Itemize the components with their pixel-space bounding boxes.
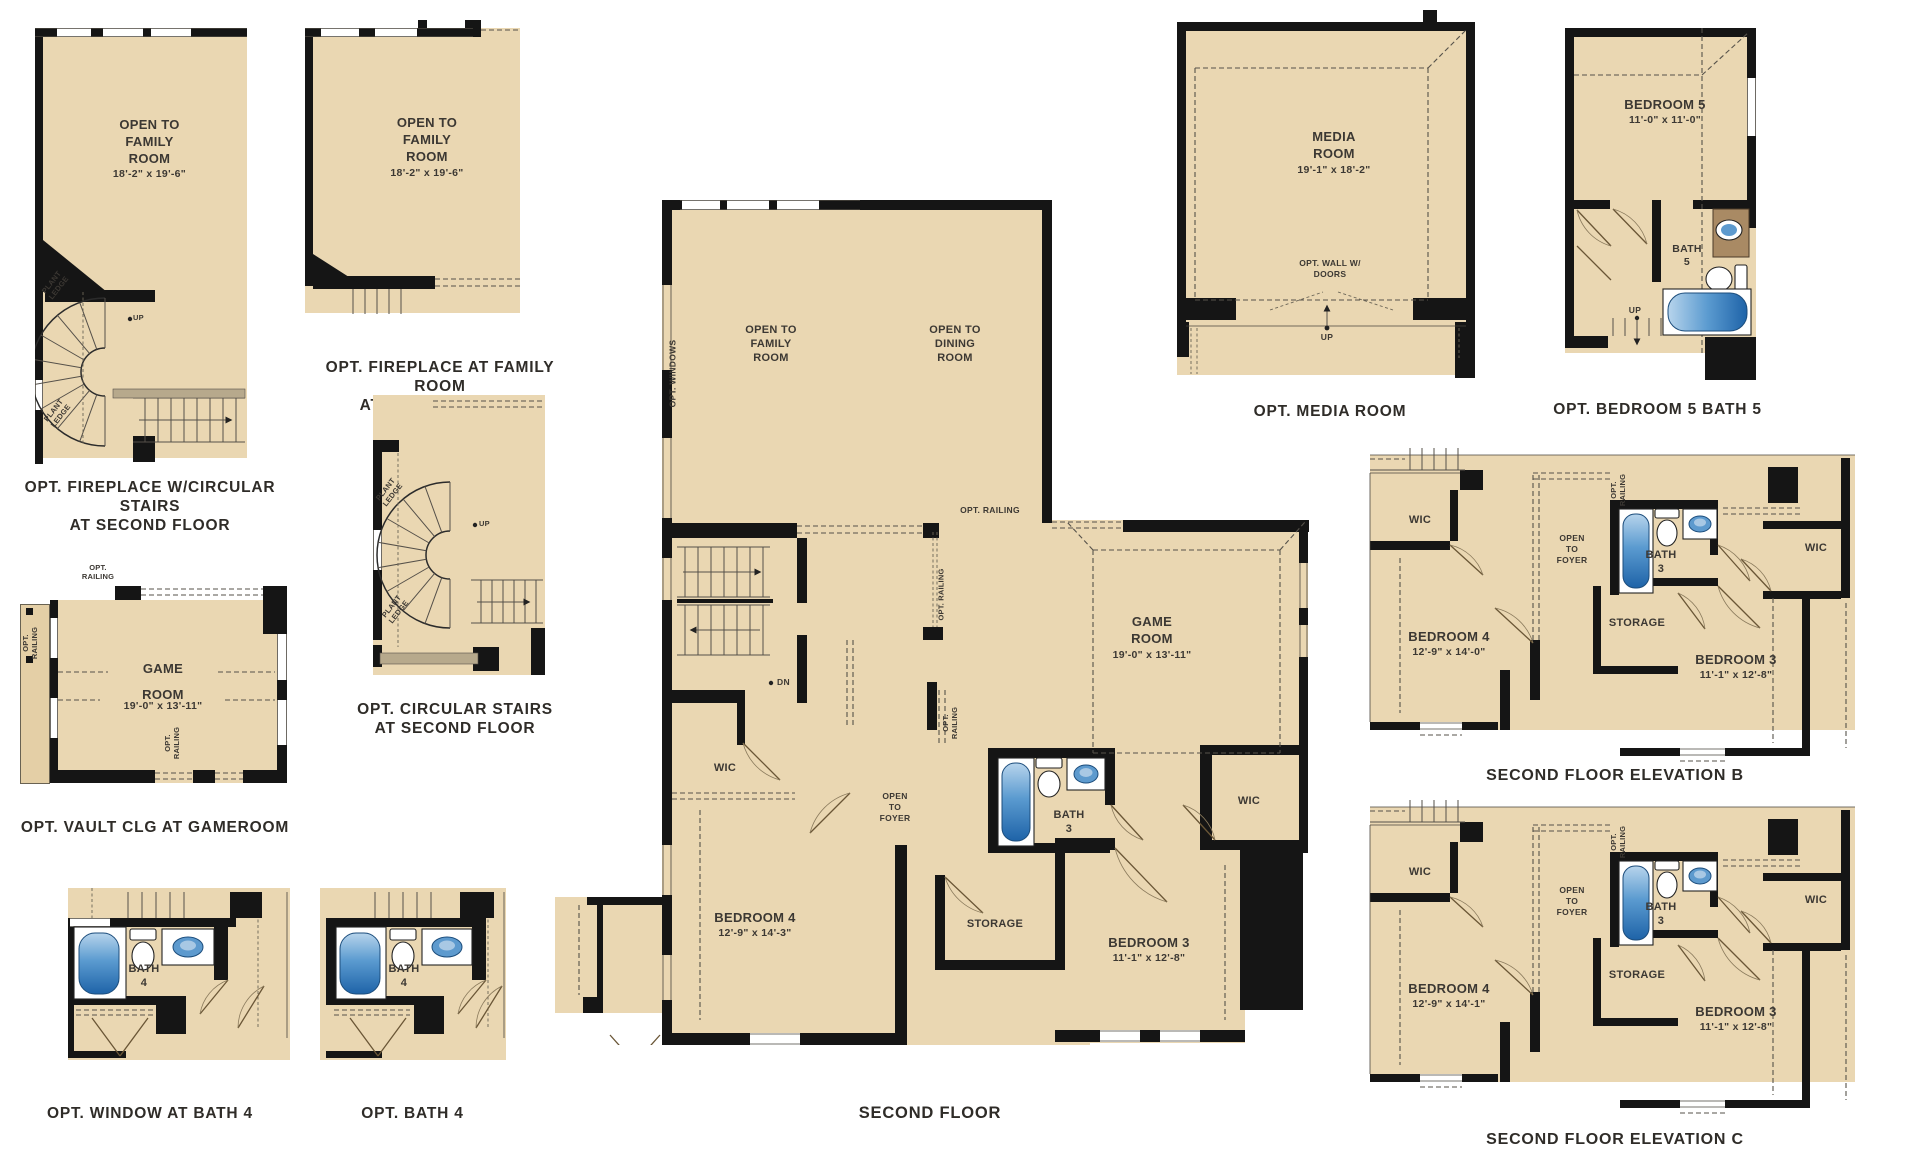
room-label-bath4: BATH 4 <box>374 962 434 990</box>
room-dims: 11'-1" x 12'-8" <box>1656 1021 1816 1034</box>
room-label-open-to-foyer: OPEN TO FOYER <box>1532 533 1612 566</box>
room-label-bedroom3: BEDROOM 3 <box>1656 651 1816 668</box>
bathtub-icon <box>1663 289 1751 335</box>
room-label-open-to-dining: OPEN TO DINING ROOM <box>895 323 1015 365</box>
caption-opt-window-at-bath4: OPT. WINDOW AT BATH 4 <box>20 1104 280 1123</box>
sink-icon <box>1683 509 1717 539</box>
toilet-icon <box>1655 509 1679 546</box>
toilet-icon <box>1036 758 1062 797</box>
room-label-wic: WIC <box>1390 865 1450 879</box>
opt-railing-label: OPT. RAILING <box>21 619 39 667</box>
room-label-wic: WIC <box>1390 513 1450 527</box>
panel-opt-circular-stairs: PLANT LEDGE PLANT LEDGE UP <box>373 395 545 677</box>
room-dims: 12'-9" x 14'-0" <box>1369 646 1529 659</box>
opt-railing-label: OPT. RAILING <box>163 719 181 767</box>
caption-elevation-b: SECOND FLOOR ELEVATION B <box>1365 766 1865 785</box>
room-label-bath3: BATH 3 <box>1631 900 1691 928</box>
sink-icon <box>1713 209 1749 257</box>
floorplan-drawing <box>373 395 545 677</box>
room-label-wic: WIC <box>1219 794 1279 808</box>
caption-second-floor: SECOND FLOOR <box>770 1104 1090 1123</box>
bathtub-icon <box>998 758 1034 846</box>
sink-icon <box>162 929 214 965</box>
room-label-open-to-foyer: OPEN TO FOYER <box>855 791 935 824</box>
room-label-wic: WIC <box>1786 893 1846 907</box>
floorplan-drawing <box>68 888 290 1065</box>
opt-railing-label: OPT. RAILING <box>1609 818 1627 866</box>
floorplan-drawing <box>1175 10 1480 380</box>
panel-opt-fireplace-circular-stairs: OPEN TO FAMILY ROOM 18'-2" x 19'-6" PLAN… <box>35 18 247 464</box>
caption-elevation-c: SECOND FLOOR ELEVATION C <box>1365 1130 1865 1149</box>
room-label-open-to-foyer: OPEN TO FOYER <box>1532 885 1612 918</box>
panel-opt-window-at-bath4: BATH 4 <box>68 888 290 1065</box>
toilet-icon <box>1655 861 1679 898</box>
room-label-storage: STORAGE <box>1577 616 1697 630</box>
panel-opt-bath4: BATH 4 <box>320 888 506 1065</box>
panel-opt-vault-clg-gameroom: OPT. RAILING OPT. RAILING OPT. RAILING G… <box>20 558 290 790</box>
opt-railing-label: OPT. RAILING <box>937 555 946 635</box>
up-label: UP <box>479 519 503 528</box>
room-dims: 11'-0" x 11'-0" <box>1585 114 1745 127</box>
opt-windows-label: OPT. WINDOWS <box>668 334 679 414</box>
room-label-bedroom4: BEDROOM 4 <box>665 909 845 926</box>
opt-wall-label: OPT. WALL W/ DOORS <box>1280 258 1380 280</box>
caption-opt-circular-stairs: OPT. CIRCULAR STAIRS AT SECOND FLOOR <box>340 700 570 738</box>
sink-icon <box>1067 758 1105 790</box>
opt-railing-label: OPT. RAILING <box>68 563 128 581</box>
sink-icon <box>1683 861 1717 891</box>
opt-railing-label: OPT. RAILING <box>941 699 959 747</box>
room-label-storage: STORAGE <box>935 917 1055 931</box>
room-label-bedroom3: BEDROOM 3 <box>1059 934 1239 951</box>
room-label-bath4: BATH 4 <box>114 962 174 990</box>
room-dims: 19'-0" x 13'-11" <box>103 700 223 713</box>
up-label: UP <box>1307 332 1347 343</box>
room-dims: 18'-2" x 19'-6" <box>347 167 507 180</box>
room-dims: 12'-9" x 14'-1" <box>1369 998 1529 1011</box>
room-label-open-to-family: OPEN TO FAMILY ROOM <box>347 114 507 165</box>
room-label-wic: WIC <box>695 761 755 775</box>
up-label: UP <box>1615 305 1655 316</box>
opt-railing-label: OPT. RAILING <box>1609 466 1627 514</box>
caption-opt-bedroom5-bath5: OPT. BEDROOM 5 BATH 5 <box>1540 400 1775 419</box>
panel-second-floor-elevation-b: WIC OPEN TO FOYER OPT. RAILING BATH 3 WI… <box>1365 443 1865 763</box>
panel-opt-media-room: MEDIA ROOM 19'-1" x 18'-2" OPT. WALL W/ … <box>1175 10 1480 380</box>
room-label-media-room: MEDIA ROOM <box>1264 128 1404 162</box>
room-label-bedroom4: BEDROOM 4 <box>1369 980 1529 997</box>
room-label-open-to-family: OPEN TO FAMILY ROOM <box>711 323 831 365</box>
caption-opt-vault-clg-gameroom: OPT. VAULT CLG AT GAMEROOM <box>10 818 300 837</box>
room-dims: 18'-2" x 19'-6" <box>67 168 232 181</box>
up-label: UP <box>133 313 157 322</box>
room-label-bedroom3: BEDROOM 3 <box>1656 1003 1816 1020</box>
room-label-bath3: BATH 3 <box>1631 548 1691 576</box>
panel-opt-bedroom5-bath5: BEDROOM 5 11'-0" x 11'-0" BATH 5 UP <box>1563 18 1758 380</box>
room-label-open-to-family: OPEN TO FAMILY ROOM <box>67 116 232 167</box>
panel-second-floor-elevation-c: WIC OPEN TO FOYER OPT. RAILING BATH 3 WI… <box>1365 795 1865 1120</box>
room-label-bedroom5: BEDROOM 5 <box>1585 96 1745 113</box>
room-label-wic: WIC <box>1786 541 1846 555</box>
room-label-game-room: GAME ROOM <box>1092 613 1212 647</box>
sink-icon <box>422 929 472 965</box>
room-dims: 11'-1" x 12'-8" <box>1059 952 1239 965</box>
floorplan-sheet: OPEN TO FAMILY ROOM 18'-2" x 19'-6" PLAN… <box>0 0 1918 1155</box>
room-label-bath5: BATH 5 <box>1657 243 1717 269</box>
room-dims: 19'-0" x 13'-11" <box>1092 649 1212 662</box>
caption-opt-bath4: OPT. BATH 4 <box>320 1104 505 1123</box>
floorplan-drawing <box>1563 18 1758 380</box>
room-dims: 12'-9" x 14'-3" <box>665 927 845 940</box>
dn-label: DN <box>777 677 807 688</box>
room-dims: 11'-1" x 12'-8" <box>1656 669 1816 682</box>
panel-opt-fireplace-family-room: OPEN TO FAMILY ROOM 18'-2" x 19'-6" <box>305 18 520 320</box>
room-label-storage: STORAGE <box>1577 968 1697 982</box>
caption-opt-media-room: OPT. MEDIA ROOM <box>1185 402 1475 421</box>
opt-railing-label: OPT. RAILING <box>940 505 1040 516</box>
caption-opt-fireplace-circular-stairs: OPT. FIREPLACE W/CIRCULAR STAIRS AT SECO… <box>0 478 300 535</box>
room-label-bedroom4: BEDROOM 4 <box>1369 628 1529 645</box>
room-label-bath3: BATH 3 <box>1039 808 1099 836</box>
room-dims: 19'-1" x 18'-2" <box>1264 164 1404 177</box>
